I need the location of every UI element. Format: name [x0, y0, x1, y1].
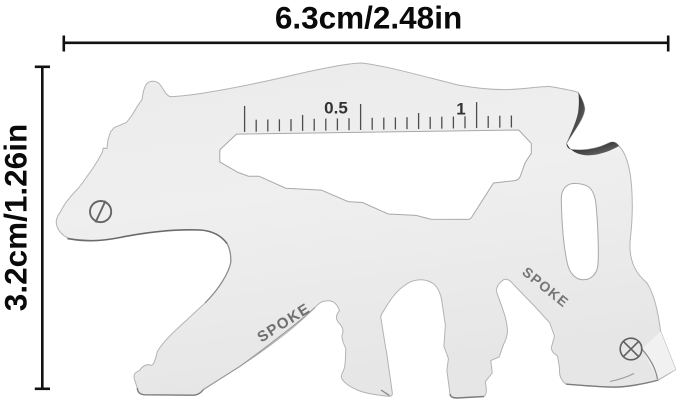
svg-text:1: 1	[456, 100, 465, 119]
svg-text:3.2cm/1.26in: 3.2cm/1.26in	[0, 124, 34, 311]
svg-text:6.3cm/2.48in: 6.3cm/2.48in	[275, 0, 462, 36]
svg-text:0.5: 0.5	[324, 99, 348, 118]
